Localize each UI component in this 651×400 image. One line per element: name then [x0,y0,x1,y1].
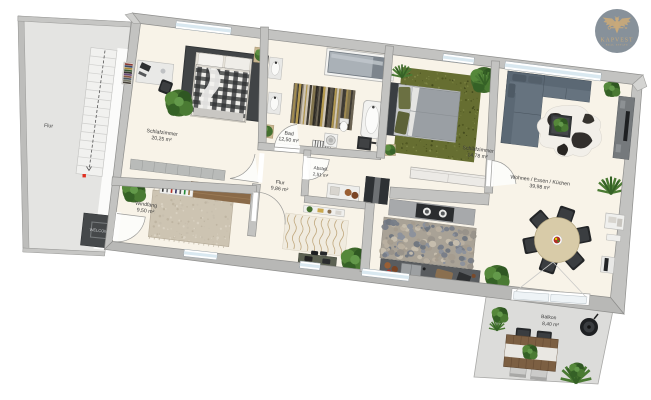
svg-text:Flur: Flur [44,123,54,130]
svg-text:Abstell.2,51 m²: Abstell.2,51 m² [313,165,330,178]
svg-text:— REAL ESTATE —: — REAL ESTATE — [600,44,632,47]
svg-text:KAPVEST: KAPVEST [600,38,633,44]
